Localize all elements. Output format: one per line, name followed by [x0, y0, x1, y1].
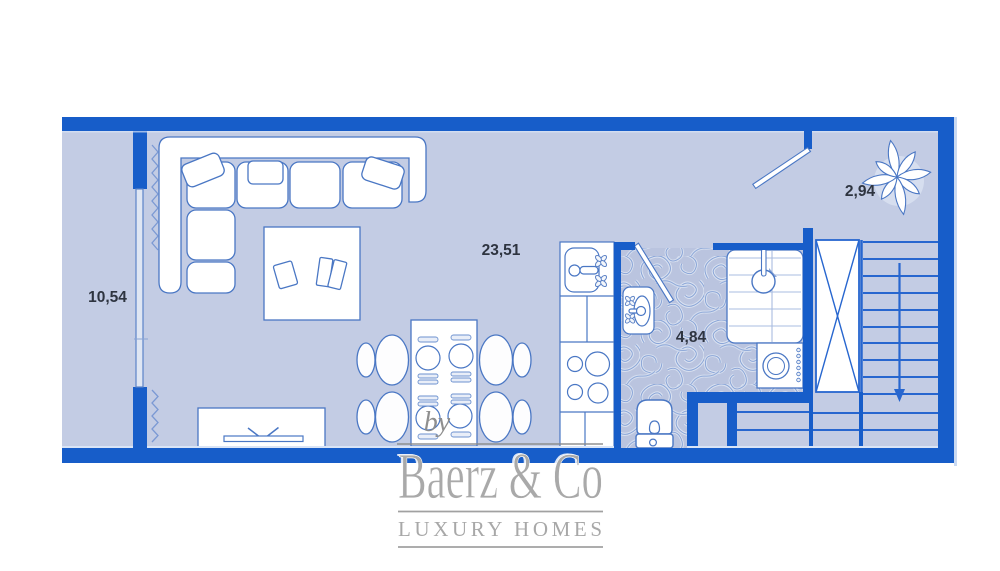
svg-text:LUXURY HOMES: LUXURY HOMES — [398, 517, 602, 541]
svg-text:by: by — [424, 407, 451, 438]
svg-text:10,54: 10,54 — [88, 289, 127, 306]
svg-text:2,94: 2,94 — [845, 183, 876, 200]
svg-text:23,51: 23,51 — [482, 242, 521, 259]
svg-text:Baerz & Co: Baerz & Co — [398, 440, 603, 513]
svg-text:4,84: 4,84 — [676, 329, 707, 346]
